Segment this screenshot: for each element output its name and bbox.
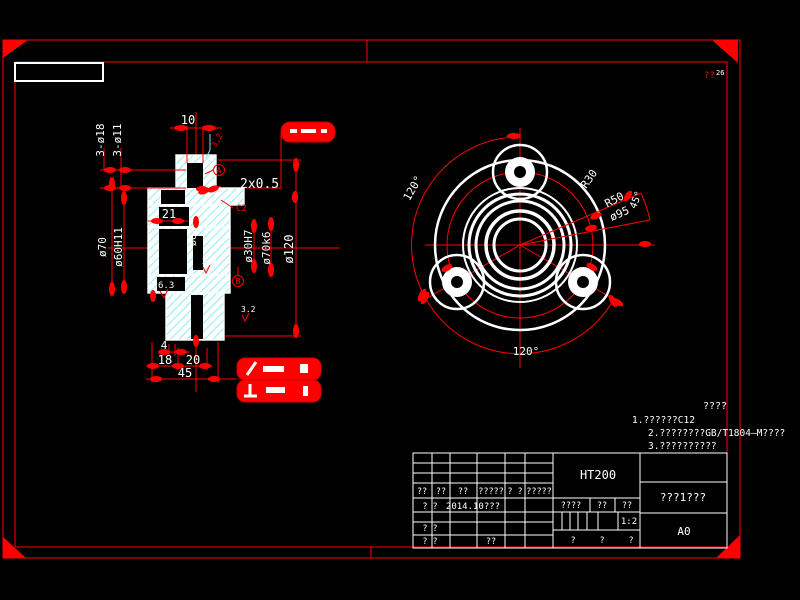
dim-d70: ø70 bbox=[96, 237, 109, 257]
th-date: ????? bbox=[526, 487, 552, 497]
th-mark: ?? bbox=[417, 487, 427, 497]
tolerance-frame-top[interactable] bbox=[281, 122, 335, 142]
stage-header: ???? bbox=[561, 501, 581, 511]
th-zone: ?? bbox=[458, 487, 468, 497]
notes-title: ???? bbox=[703, 401, 727, 412]
cad-drawing[interactable]: ?? 26 bbox=[0, 0, 800, 600]
note-2: 2.????????GB/T1804—M???? bbox=[648, 428, 785, 439]
part-name: ???1??? bbox=[660, 491, 706, 504]
th-sign: ? ? bbox=[507, 487, 522, 497]
dim-3xd18: 3-ø18 bbox=[94, 123, 107, 156]
dim-2x05: 2x0.5 bbox=[240, 177, 279, 192]
corner-note-white: 26 bbox=[716, 69, 724, 77]
tolerance-frame-bottom[interactable] bbox=[237, 358, 321, 402]
proof-label: ? ? bbox=[422, 524, 437, 534]
dim-d30h7: ø30H7 bbox=[242, 229, 255, 262]
sheet-count-3: ? bbox=[628, 536, 633, 546]
dim-4: 4 bbox=[161, 339, 168, 352]
reverse-title-box bbox=[15, 63, 103, 81]
scale-header: ?? bbox=[622, 501, 632, 511]
approve-label: ? ? bbox=[422, 537, 437, 547]
note-3: 3.?????????? bbox=[648, 441, 717, 452]
sheet-size: A0 bbox=[677, 525, 690, 538]
svg-text:6.3: 6.3 bbox=[158, 281, 174, 291]
dim-d120: ø120 bbox=[282, 235, 296, 264]
paper-background bbox=[0, 0, 800, 600]
design-date: 2014.10??? bbox=[446, 502, 500, 512]
svg-text:3.2: 3.2 bbox=[202, 257, 217, 266]
dim-d62: ø62 bbox=[188, 228, 199, 246]
corner-note-red: ?? bbox=[704, 71, 715, 81]
dim-c2: C2 bbox=[236, 204, 247, 214]
note-1: 1.??????C12 bbox=[632, 415, 695, 426]
dim-21: 21 bbox=[162, 207, 176, 221]
scale-value: 1:2 bbox=[621, 517, 637, 527]
weight-header: ?? bbox=[597, 501, 607, 511]
svg-text:B: B bbox=[236, 277, 241, 286]
dim-45: 45 bbox=[178, 366, 192, 380]
th-count: ?? bbox=[436, 487, 446, 497]
design-label: ? ? bbox=[422, 502, 437, 512]
dim-3xd11: 3-ø11 bbox=[111, 123, 124, 156]
approve-extra: ?? bbox=[486, 537, 496, 547]
dim-d70k6: ø70k6 bbox=[260, 231, 273, 264]
svg-text:A: A bbox=[217, 166, 222, 175]
dim-10: 10 bbox=[181, 113, 195, 127]
cad-viewport[interactable]: ?? 26 bbox=[0, 0, 800, 600]
sheet-count-1: ? bbox=[570, 536, 575, 546]
dim-d60h11: ø60H11 bbox=[112, 227, 125, 267]
material: HT200 bbox=[580, 468, 616, 482]
dim-18: 18 bbox=[158, 353, 172, 367]
th-docno: ????? bbox=[478, 487, 504, 497]
dim-120-bottom: 120° bbox=[513, 345, 540, 358]
sheet-count-2: ? bbox=[599, 536, 604, 546]
svg-text:3.2: 3.2 bbox=[241, 305, 256, 314]
dim-20: 20 bbox=[186, 353, 200, 367]
